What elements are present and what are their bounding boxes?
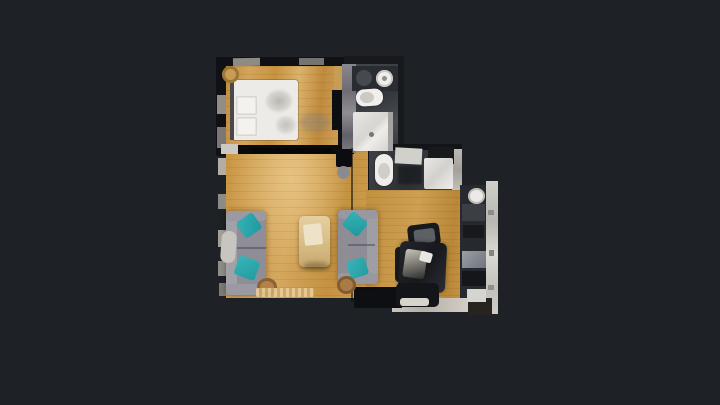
wicker-basket-2 bbox=[337, 276, 356, 294]
bedroom-left-wall-chip bbox=[217, 95, 226, 114]
living-left-wall-chip-5 bbox=[219, 283, 226, 296]
coffee-table-books bbox=[303, 223, 323, 246]
kitchen-white-patch bbox=[467, 289, 486, 302]
toilet-seat bbox=[360, 92, 374, 103]
tv-unit bbox=[336, 149, 352, 167]
sofa-left-cushion-split bbox=[237, 247, 266, 249]
kitchen-wall-speckle-3 bbox=[488, 285, 494, 290]
tv-side-disc bbox=[337, 166, 350, 179]
shower-glass-edge bbox=[388, 112, 393, 151]
bedroom-floor-smudge bbox=[300, 113, 330, 132]
living-left-wall-chip-1 bbox=[218, 158, 226, 175]
kitchen-appliance-patch-3 bbox=[462, 271, 486, 286]
kitchen-appliance-patch-1 bbox=[462, 204, 485, 221]
rug-fringe bbox=[256, 288, 314, 297]
kitchen-round-sink bbox=[468, 188, 485, 204]
kitchen-counter-wall bbox=[486, 181, 498, 314]
dining-chair-bottom-rim bbox=[400, 298, 429, 306]
toilet-room-floor-clutter bbox=[398, 166, 422, 184]
dining-bottom-left-wall bbox=[354, 287, 402, 308]
kitchen-appliance-patch-2 bbox=[463, 225, 484, 238]
door-leaf bbox=[252, 148, 332, 153]
shower-drain bbox=[369, 132, 374, 137]
living-left-wall-chip-4 bbox=[218, 261, 226, 276]
bed-pillow-2 bbox=[236, 117, 257, 136]
sofa-right-cushion-split bbox=[348, 244, 375, 246]
floorplan-viewport[interactable] bbox=[0, 0, 720, 405]
toilet-room-sink-chip bbox=[395, 147, 423, 164]
bedroom-top-wall-chip bbox=[233, 58, 260, 66]
duvet-wrinkle bbox=[266, 90, 292, 112]
toilet-2-seat bbox=[378, 163, 390, 179]
duvet-wrinkle-2 bbox=[276, 116, 296, 134]
bathroom-sink-drain bbox=[382, 76, 387, 81]
bedroom-door-chip bbox=[221, 144, 238, 154]
kitchen-wall-speckle-1 bbox=[488, 210, 494, 215]
bathroom-dark-basin bbox=[356, 70, 372, 86]
bed-pillow bbox=[236, 96, 257, 115]
kitchen-metal-patch bbox=[462, 251, 486, 268]
sofa-left-throw-blanket bbox=[220, 231, 237, 264]
bed-headboard bbox=[230, 80, 234, 140]
bedside-stool bbox=[222, 66, 239, 83]
washing-machine bbox=[424, 158, 453, 189]
living-left-wall-chip-2 bbox=[218, 194, 226, 209]
kitchen-wall-speckle-2 bbox=[489, 250, 494, 256]
bedroom-top-wall-chip-2 bbox=[299, 58, 324, 65]
coffee-table-shadow bbox=[303, 262, 329, 270]
